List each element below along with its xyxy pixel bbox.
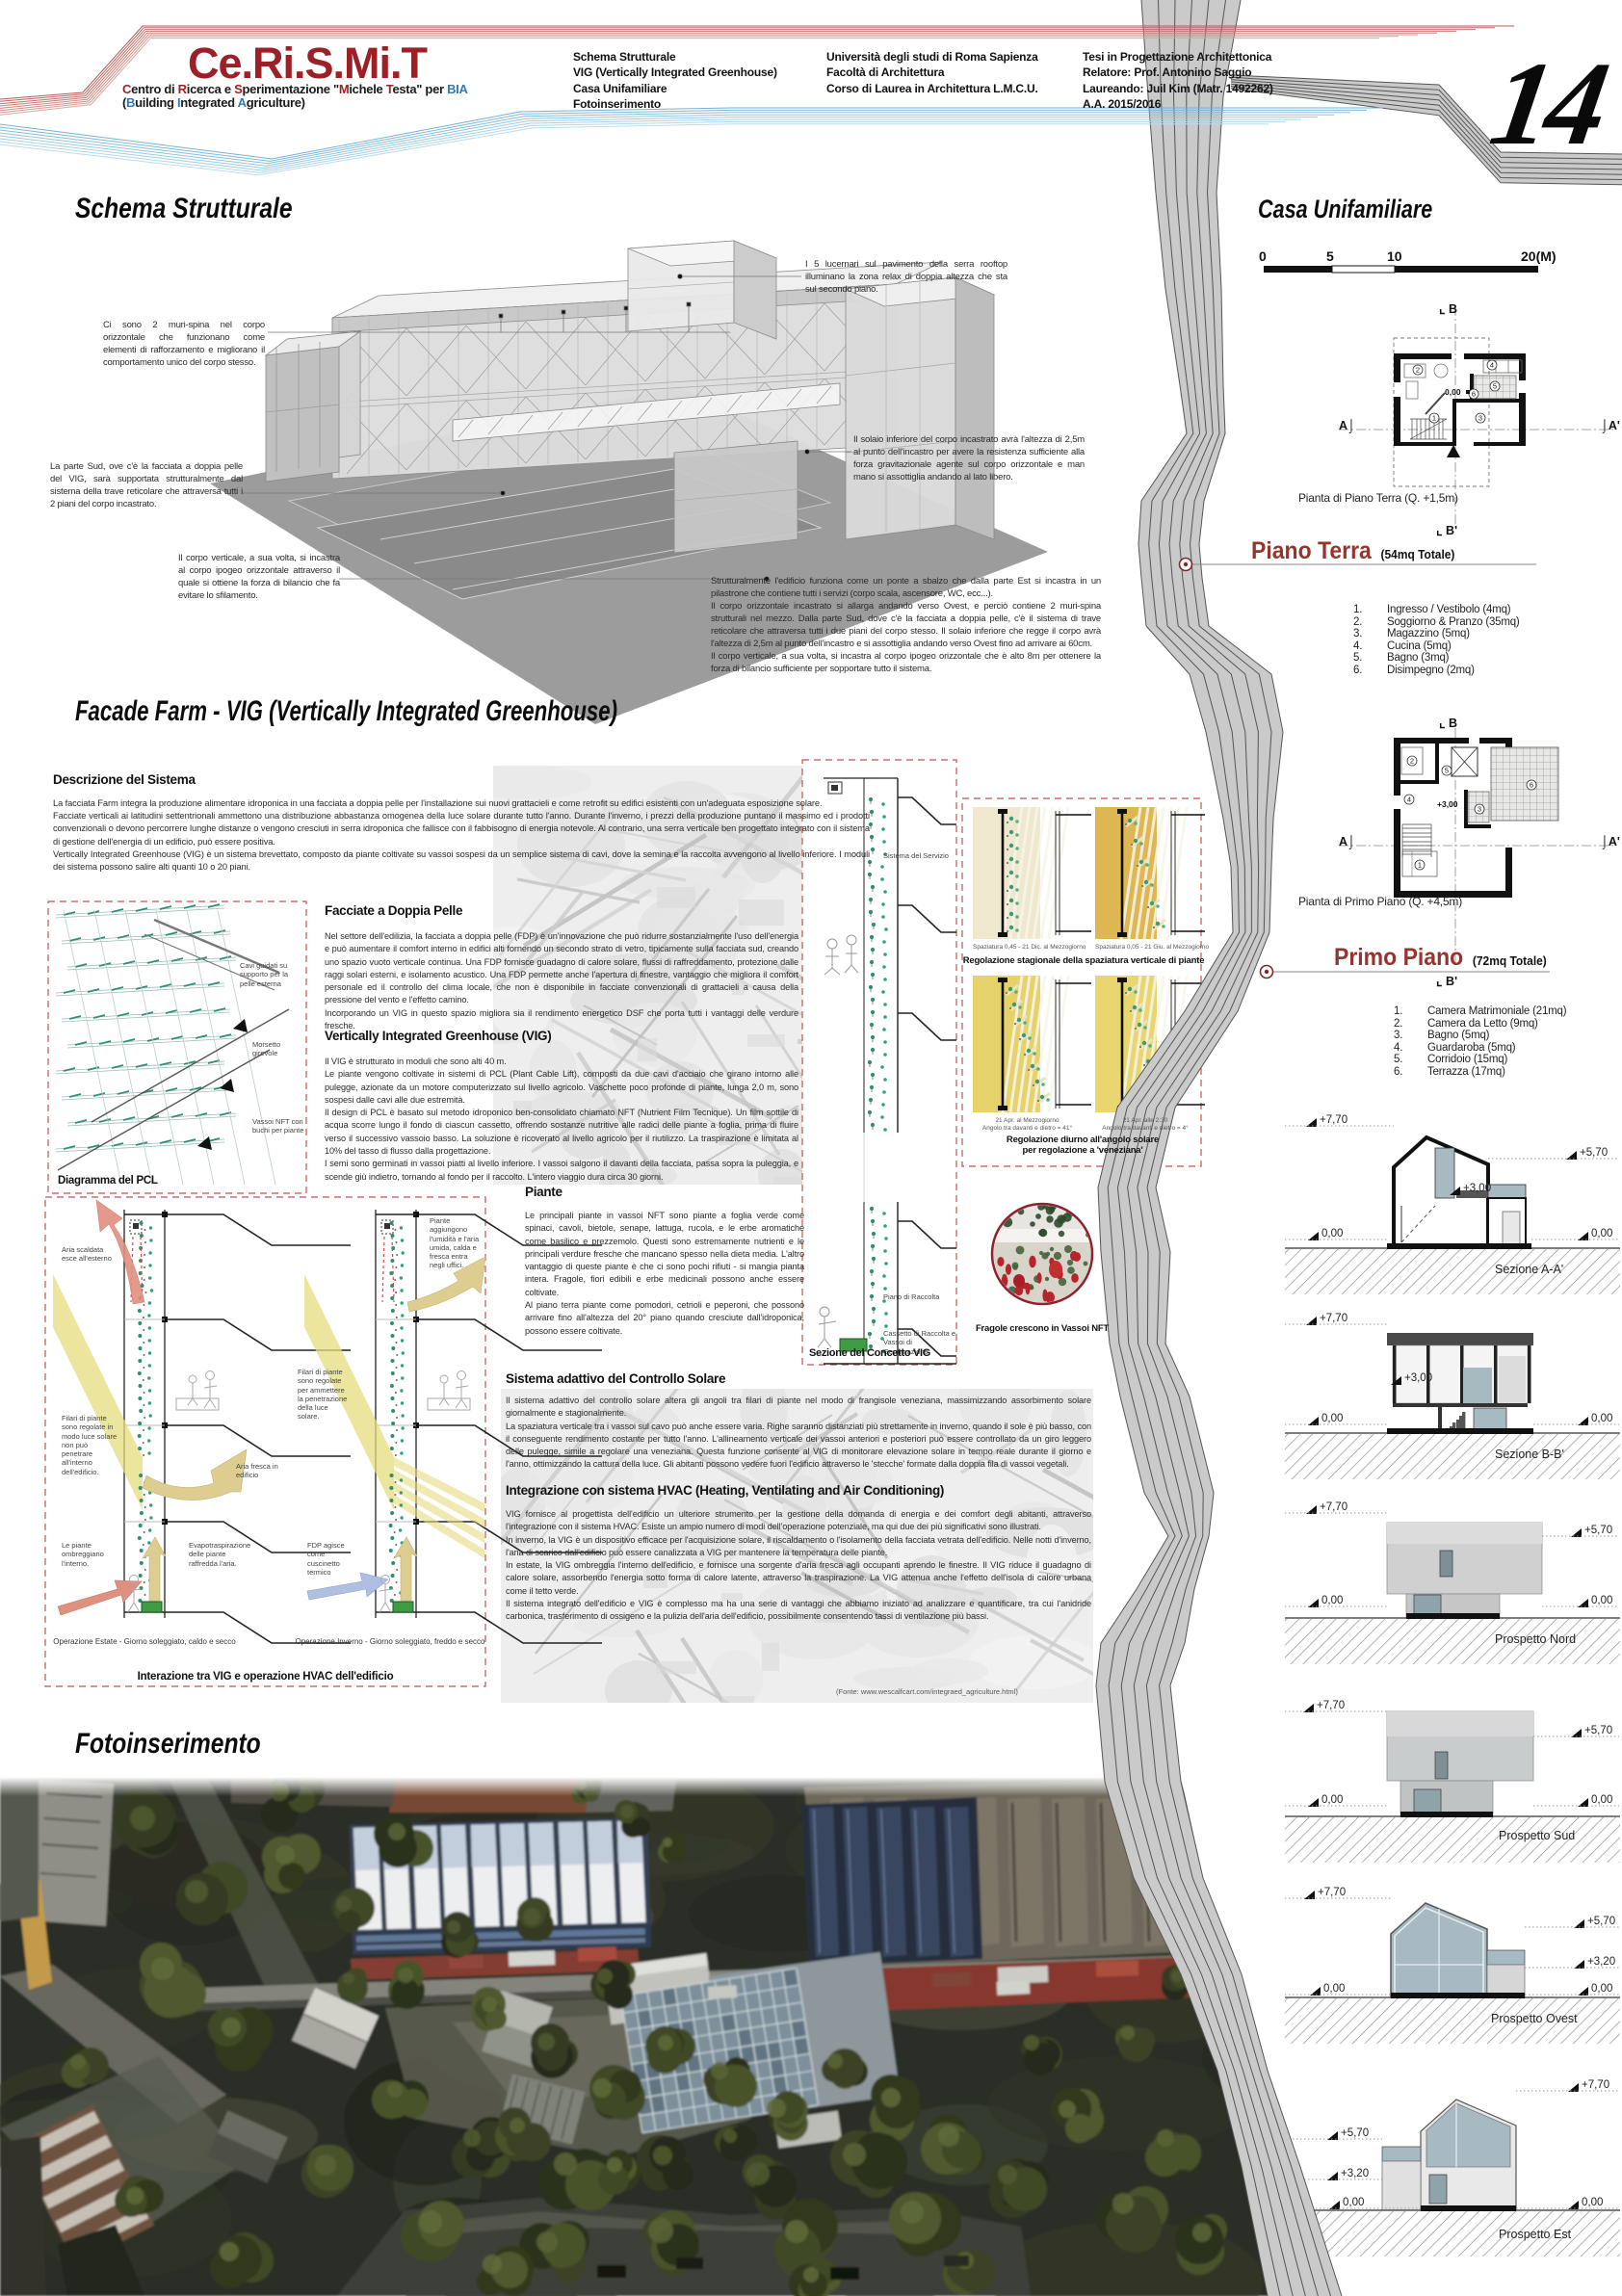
svg-text:+7,70: +7,70 <box>1318 1887 1346 1898</box>
svg-text:0,00: 0,00 <box>1321 1228 1343 1239</box>
svg-text:0,00: 0,00 <box>1582 2197 1603 2208</box>
svg-text:+5,70: +5,70 <box>1587 1916 1615 1927</box>
svg-text:0,00: 0,00 <box>1591 1595 1612 1606</box>
svg-text:3: 3 <box>1478 414 1482 423</box>
svg-text:4: 4 <box>1407 796 1411 804</box>
svg-text:+7,70: +7,70 <box>1317 1700 1345 1711</box>
svg-text:0,00: 0,00 <box>1321 1413 1343 1424</box>
svg-text:+5,70: +5,70 <box>1584 1525 1612 1536</box>
svg-text:0,00: 0,00 <box>1321 1595 1343 1606</box>
svg-text:Prospetto Nord: Prospetto Nord <box>1495 1632 1576 1646</box>
svg-text:0,00: 0,00 <box>1343 2197 1364 2208</box>
svg-text:2: 2 <box>1410 757 1414 766</box>
svg-text:0,00: 0,00 <box>1591 1413 1612 1424</box>
svg-text:0,00: 0,00 <box>1591 1794 1612 1806</box>
svg-text:+7,70: +7,70 <box>1320 1114 1347 1126</box>
svg-text:Sezione B-B': Sezione B-B' <box>1495 1448 1564 1461</box>
svg-text:0,00: 0,00 <box>1323 1983 1345 1995</box>
svg-text:2: 2 <box>1416 366 1420 375</box>
svg-text:5: 5 <box>1445 767 1449 775</box>
svg-text:+5,70: +5,70 <box>1580 1147 1608 1159</box>
svg-text:Prospetto Sud: Prospetto Sud <box>1499 1829 1575 1842</box>
svg-text:0,00: 0,00 <box>1321 1794 1343 1806</box>
svg-text:+3,20: +3,20 <box>1587 1956 1615 1968</box>
svg-text:+3,20: +3,20 <box>1341 2168 1369 2179</box>
svg-text:0,00: 0,00 <box>1591 1983 1612 1995</box>
svg-text:+7,70: +7,70 <box>1582 2079 1609 2091</box>
svg-text:+7,70: +7,70 <box>1320 1501 1347 1513</box>
svg-text:+3,00: +3,00 <box>1404 1372 1432 1384</box>
svg-text:6: 6 <box>1530 781 1533 790</box>
svg-text:Prospetto Est: Prospetto Est <box>1499 2228 1572 2241</box>
svg-text:+5,70: +5,70 <box>1341 2127 1369 2139</box>
svg-text:+3,00: +3,00 <box>1463 1183 1491 1194</box>
svg-text:4: 4 <box>1490 361 1494 370</box>
svg-text:5: 5 <box>1493 382 1497 391</box>
svg-text:+5,70: +5,70 <box>1584 1725 1612 1736</box>
svg-text:1: 1 <box>1418 861 1422 870</box>
svg-text:1: 1 <box>1432 414 1436 423</box>
svg-text:+7,70: +7,70 <box>1320 1313 1347 1324</box>
svg-text:Prospetto Ovest: Prospetto Ovest <box>1491 2012 1578 2025</box>
svg-text:Sezione A-A': Sezione A-A' <box>1495 1263 1563 1276</box>
svg-text:0,00: 0,00 <box>1591 1228 1612 1239</box>
